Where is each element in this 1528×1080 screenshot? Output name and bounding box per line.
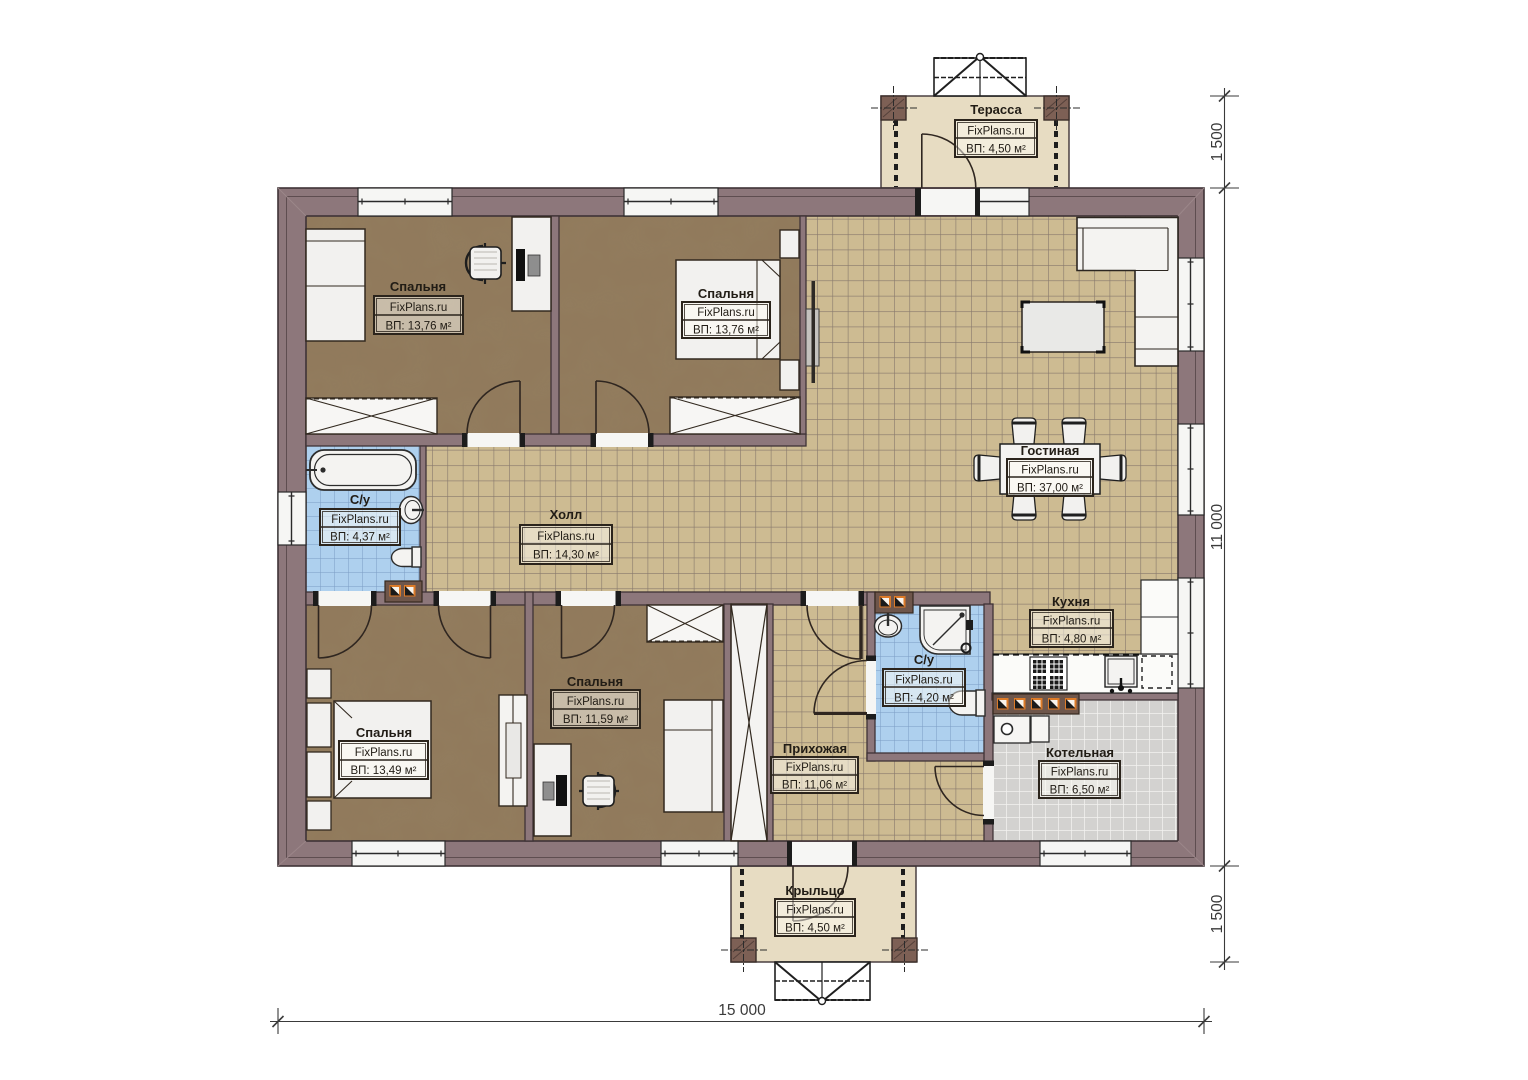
svg-text:ВП: 4,80 м²: ВП: 4,80 м² (1042, 634, 1102, 646)
svg-text:Крыльцо: Крыльцо (785, 883, 844, 898)
svg-text:ВП: 4,50 м²: ВП: 4,50 м² (785, 923, 845, 935)
svg-text:Спальня: Спальня (390, 279, 446, 294)
svg-text:FixPlans.ru: FixPlans.ru (355, 747, 413, 759)
svg-text:1 500: 1 500 (1209, 894, 1226, 933)
svg-text:FixPlans.ru: FixPlans.ru (390, 302, 448, 314)
svg-text:Холл: Холл (550, 507, 583, 522)
svg-text:Гостиная: Гостиная (1021, 443, 1080, 458)
svg-text:11 000: 11 000 (1209, 503, 1226, 550)
svg-text:Спальня: Спальня (698, 286, 754, 301)
svg-text:Спальня: Спальня (356, 725, 412, 740)
svg-text:15 000: 15 000 (718, 1002, 766, 1019)
svg-text:ВП: 13,76 м²: ВП: 13,76 м² (693, 325, 759, 337)
svg-text:FixPlans.ru: FixPlans.ru (1021, 465, 1079, 477)
svg-text:ВП: 11,06 м²: ВП: 11,06 м² (782, 780, 847, 792)
svg-text:ВП: 14,30 м²: ВП: 14,30 м² (533, 550, 599, 562)
svg-text:FixPlans.ru: FixPlans.ru (786, 762, 844, 774)
svg-text:FixPlans.ru: FixPlans.ru (537, 531, 595, 543)
svg-text:FixPlans.ru: FixPlans.ru (697, 307, 755, 319)
svg-text:С/у: С/у (350, 492, 371, 507)
svg-text:ВП: 13,49 м²: ВП: 13,49 м² (350, 765, 416, 777)
svg-text:FixPlans.ru: FixPlans.ru (567, 696, 625, 708)
svg-text:Кухня: Кухня (1052, 594, 1090, 609)
svg-text:Прихожая: Прихожая (783, 741, 847, 756)
svg-text:1 500: 1 500 (1209, 122, 1226, 161)
svg-text:ВП: 6,50 м²: ВП: 6,50 м² (1050, 785, 1110, 797)
svg-text:FixPlans.ru: FixPlans.ru (786, 905, 844, 917)
svg-text:FixPlans.ru: FixPlans.ru (331, 514, 389, 526)
svg-text:FixPlans.ru: FixPlans.ru (1051, 767, 1109, 779)
svg-text:ВП: 4,20 м²: ВП: 4,20 м² (894, 693, 954, 705)
svg-text:ВП: 11,59 м²: ВП: 11,59 м² (563, 714, 628, 726)
svg-text:ВП: 4,37 м²: ВП: 4,37 м² (330, 532, 390, 544)
svg-text:Спальня: Спальня (567, 674, 623, 689)
svg-text:FixPlans.ru: FixPlans.ru (895, 675, 953, 687)
svg-text:ВП: 4,50 м²: ВП: 4,50 м² (966, 144, 1026, 156)
svg-text:Терасса: Терасса (970, 102, 1022, 117)
svg-text:С/у: С/у (914, 652, 935, 667)
svg-text:Котельная: Котельная (1046, 745, 1114, 760)
svg-text:FixPlans.ru: FixPlans.ru (1043, 616, 1101, 628)
svg-text:ВП: 37,00 м²: ВП: 37,00 м² (1017, 483, 1083, 495)
svg-text:FixPlans.ru: FixPlans.ru (967, 126, 1025, 138)
svg-text:ВП: 13,76 м²: ВП: 13,76 м² (385, 321, 451, 333)
